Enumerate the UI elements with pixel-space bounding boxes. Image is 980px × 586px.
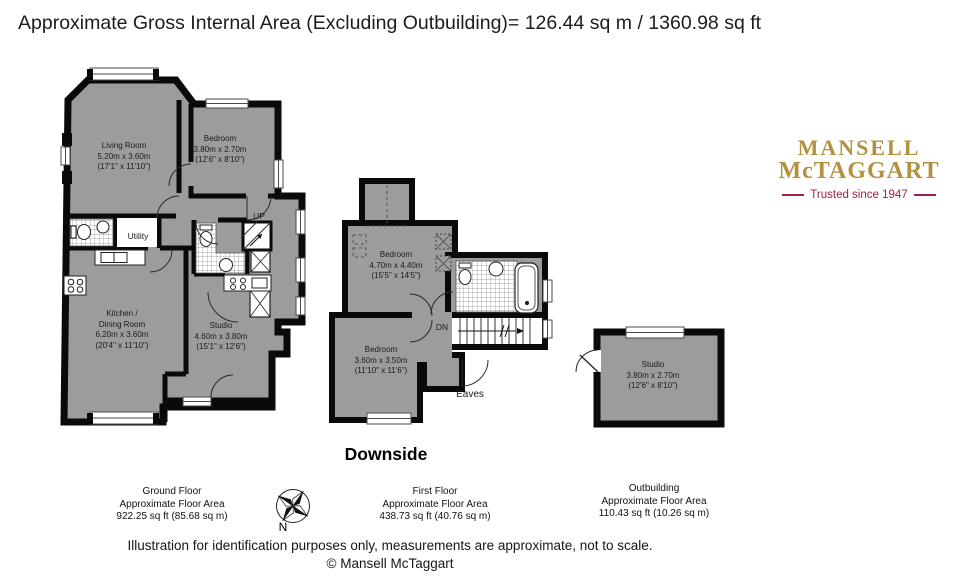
- logo-line1: MANSELL: [770, 136, 948, 159]
- first-floor-area-caption: First Floor Approximate Floor Area 438.7…: [379, 486, 490, 524]
- outbuilding-window: [626, 327, 684, 338]
- bathroom-tiles: [456, 261, 517, 312]
- room-dims-ft: (15'5" x 14'5"): [370, 271, 423, 282]
- ground-floor-area-caption: Ground Floor Approximate Floor Area 922.…: [116, 486, 227, 524]
- room-name: Studio: [627, 360, 680, 371]
- room-label-bedroom1-first: Bedroom 4.70m x 4.40m (15'5" x 14'5"): [370, 250, 423, 282]
- bathroom-basin-icon: [220, 259, 233, 272]
- floor-name: First Floor: [379, 486, 490, 499]
- floorplan-page: Approximate Gross Internal Area (Excludi…: [0, 0, 980, 586]
- kitchen-hob-icon: [64, 276, 86, 295]
- eaves-label: Eaves: [456, 388, 484, 401]
- room-dims-m: 3.80m x 2.70m: [627, 371, 680, 382]
- toilet-icon-first: [459, 263, 471, 285]
- room-dims-ft: (11'10" x 11'6"): [355, 366, 408, 377]
- room-dims-ft: (12'6" x 8'10"): [627, 381, 680, 392]
- stairs-down-label: DN: [436, 322, 448, 333]
- wc-toilet-icon: [71, 225, 91, 240]
- room-label-bedroom-ground: Bedroom 3.80m x 2.70m (12'6" x 8'10"): [194, 134, 247, 166]
- logo-line2: McTAGGART: [770, 159, 948, 184]
- room-dims-ft: (15'1" x 12'6"): [195, 342, 248, 353]
- floor-name: Outbuilding: [599, 483, 709, 496]
- room-label-utility: Utility: [128, 231, 149, 242]
- room-label-studio-ground: Studio 4.60m x 3.80m (15'1" x 12'6"): [195, 321, 248, 353]
- room-dims-m: 4.60m x 3.80m: [195, 332, 248, 343]
- room-dims-m: 3.80m x 2.70m: [194, 145, 247, 156]
- basin-icon-first: [489, 262, 503, 276]
- compass-blades: [268, 481, 318, 531]
- first-floor-plan: [332, 181, 552, 424]
- property-name: Downside: [345, 444, 428, 465]
- room-name: Studio: [195, 321, 248, 332]
- disclaimer-text: Illustration for identification purposes…: [0, 537, 780, 555]
- room-dims-m: 3.60m x 3.50m: [355, 356, 408, 367]
- bath-icon: [515, 263, 538, 313]
- room-label-kitchen: Kitchen / Dining Room 6.20m x 3.60m (20'…: [95, 309, 148, 351]
- room-dims-m: 6.20m x 3.60m: [95, 330, 148, 341]
- wall-pilaster: [62, 133, 72, 146]
- landing: [412, 312, 452, 362]
- room-dims-m: 5.20m x 3.60m: [97, 152, 150, 163]
- outbuilding-area-caption: Outbuilding Approximate Floor Area 110.4…: [599, 483, 709, 521]
- logo-tagline-row: Trusted since 1947: [770, 189, 948, 201]
- logo-tagline: Trusted since 1947: [810, 189, 907, 201]
- room-dims-ft: (20'4" x 11'10"): [95, 341, 148, 352]
- tagline-rule-left: [782, 194, 804, 196]
- stairs-up: [243, 222, 271, 250]
- compass-rose-icon: [268, 481, 318, 531]
- copyright-text: © Mansell McTaggart: [0, 555, 780, 573]
- floor-area-value: 922.25 sq ft (85.68 sq m): [116, 511, 227, 524]
- room-dims-m: 4.70m x 4.40m: [370, 261, 423, 272]
- wc-basin-icon: [97, 221, 109, 233]
- floor-area-title: Approximate Floor Area: [599, 496, 709, 509]
- room-name: Living Room: [97, 141, 150, 152]
- room-label-studio-outbuilding: Studio 3.80m x 2.70m (12'6" x 8'10"): [627, 360, 680, 392]
- floor-area-value: 438.73 sq ft (40.76 sq m): [379, 511, 490, 524]
- wall-pilaster: [62, 171, 72, 184]
- floor-name: Ground Floor: [116, 486, 227, 499]
- studio-hob-counter: [224, 275, 271, 291]
- room-name: Bedroom: [370, 250, 423, 261]
- floor-area-title: Approximate Floor Area: [379, 499, 490, 512]
- room-label-bedroom2-first: Bedroom 3.60m x 3.50m (11'10" x 11'6"): [355, 345, 408, 377]
- room-name: Bedroom: [355, 345, 408, 356]
- ground-floor-plan: [61, 68, 305, 424]
- footer-text: Illustration for identification purposes…: [0, 537, 780, 572]
- outbuilding-door: [576, 350, 601, 372]
- bathroom-toilet-icon: [200, 225, 212, 247]
- room-label-living-room: Living Room 5.20m x 3.60m (17'1" x 11'10…: [97, 141, 150, 173]
- floor-area-value: 110.43 sq ft (10.26 sq m): [599, 508, 709, 521]
- floor-area-title: Approximate Floor Area: [116, 499, 227, 512]
- agency-logo: MANSELL McTAGGART Trusted since 1947: [770, 136, 948, 201]
- room-dims-ft: (12'6" x 8'10"): [194, 155, 247, 166]
- compass-north-label: N: [279, 520, 288, 534]
- room-name: Dining Room: [95, 320, 148, 331]
- tagline-rule-right: [914, 194, 936, 196]
- stairs-up-label: UP: [253, 211, 265, 222]
- kitchen-sink-counter: [95, 250, 145, 265]
- room-dims-ft: (17'1" x 11'10"): [97, 162, 150, 173]
- room-name: Bedroom: [194, 134, 247, 145]
- room-name: Kitchen /: [95, 309, 148, 320]
